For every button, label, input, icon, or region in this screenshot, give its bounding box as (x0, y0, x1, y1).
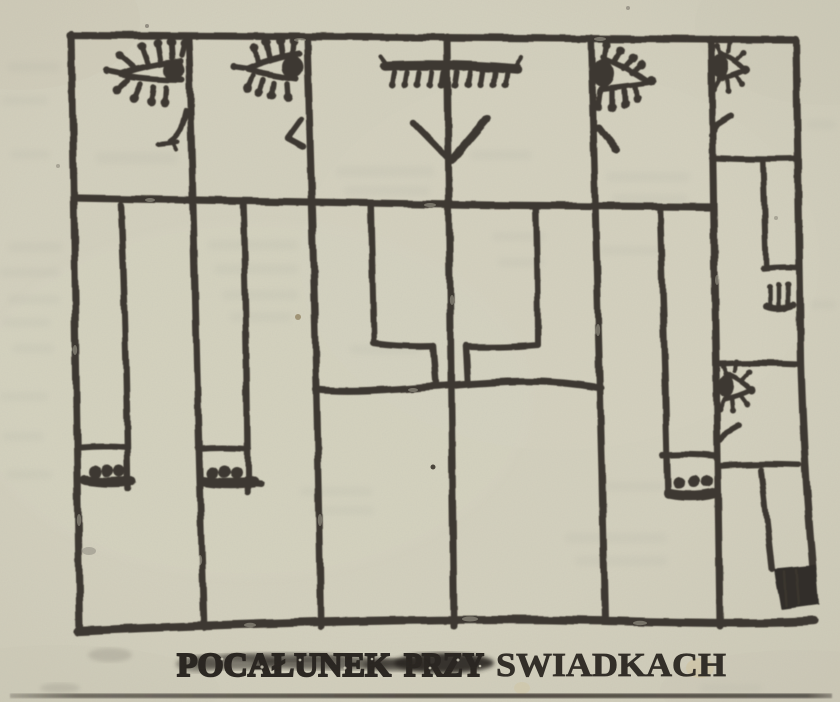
svg-text:SWIADKACH: SWIADKACH (496, 647, 726, 684)
